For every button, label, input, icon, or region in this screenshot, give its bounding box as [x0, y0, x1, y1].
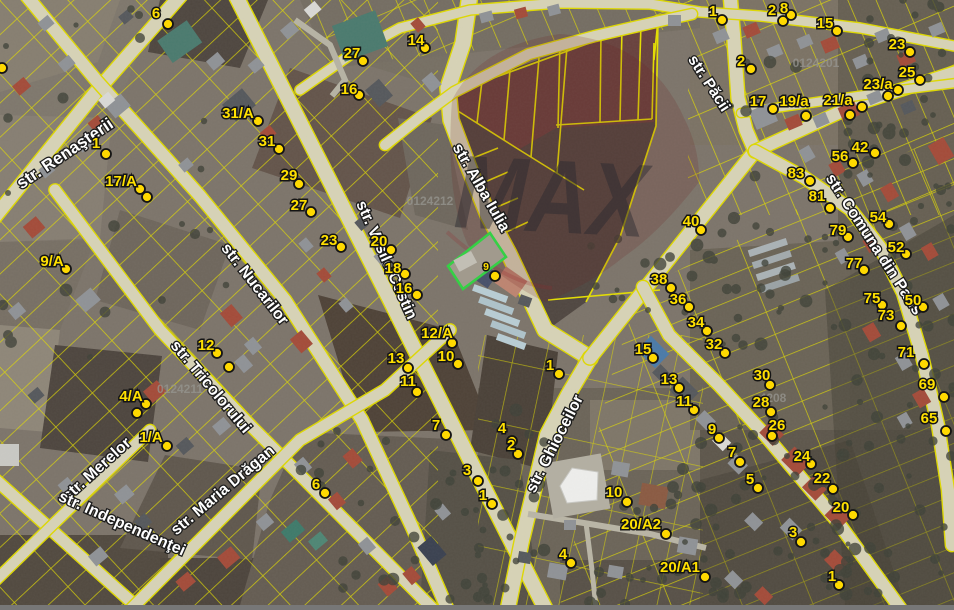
svg-text:27: 27	[291, 197, 308, 214]
svg-text:3: 3	[463, 462, 471, 479]
svg-text:4/A: 4/A	[119, 388, 143, 405]
svg-text:12: 12	[198, 337, 215, 354]
svg-text:32: 32	[706, 336, 723, 353]
svg-text:2: 2	[768, 2, 776, 19]
svg-text:26: 26	[769, 417, 786, 434]
svg-text:22: 22	[814, 470, 831, 487]
svg-text:0124201: 0124201	[793, 56, 840, 70]
svg-text:0124211: 0124211	[157, 382, 203, 396]
svg-text:31: 31	[259, 133, 276, 150]
svg-text:23: 23	[321, 232, 338, 249]
svg-text:13: 13	[388, 350, 405, 367]
svg-text:73: 73	[878, 307, 895, 324]
svg-text:1: 1	[92, 135, 100, 152]
svg-text:14: 14	[408, 32, 425, 49]
svg-text:12/A: 12/A	[421, 325, 453, 342]
svg-text:16: 16	[341, 81, 358, 98]
svg-text:17: 17	[750, 93, 767, 110]
svg-text:6: 6	[312, 476, 320, 493]
svg-text:20: 20	[371, 233, 388, 250]
svg-text:69: 69	[919, 376, 936, 393]
svg-text:81: 81	[809, 188, 826, 205]
svg-text:15: 15	[817, 15, 834, 32]
svg-text:7: 7	[728, 444, 736, 461]
svg-text:9: 9	[708, 421, 716, 438]
svg-text:42: 42	[852, 139, 869, 156]
svg-text:1: 1	[828, 568, 836, 585]
svg-text:20/A2: 20/A2	[621, 516, 661, 533]
svg-text:50: 50	[905, 292, 922, 309]
svg-text:28: 28	[753, 394, 770, 411]
svg-text:36: 36	[670, 291, 687, 308]
svg-text:24: 24	[794, 448, 811, 465]
svg-text:83: 83	[788, 165, 805, 182]
svg-text:10: 10	[438, 348, 455, 365]
svg-text:10: 10	[606, 484, 623, 501]
svg-text:3: 3	[789, 524, 797, 541]
svg-text:65: 65	[921, 410, 938, 427]
svg-text:2: 2	[737, 53, 745, 70]
svg-text:15: 15	[635, 341, 652, 358]
svg-text:5: 5	[746, 471, 754, 488]
svg-text:23/a: 23/a	[863, 76, 893, 93]
svg-text:2: 2	[507, 437, 515, 454]
svg-text:11: 11	[676, 393, 692, 410]
svg-text:40: 40	[683, 213, 700, 230]
svg-text:29: 29	[281, 167, 298, 184]
svg-text:9: 9	[483, 261, 489, 273]
svg-text:34: 34	[688, 314, 705, 331]
svg-text:1/A: 1/A	[139, 429, 163, 446]
svg-text:38: 38	[651, 271, 668, 288]
svg-text:16: 16	[396, 280, 413, 297]
svg-text:54: 54	[870, 209, 887, 226]
svg-text:52: 52	[888, 239, 905, 256]
svg-text:7: 7	[432, 417, 440, 434]
svg-text:75: 75	[864, 290, 881, 307]
svg-text:17/A: 17/A	[105, 173, 137, 190]
svg-text:11: 11	[400, 373, 416, 390]
svg-text:4: 4	[498, 420, 507, 437]
svg-text:77: 77	[846, 255, 863, 272]
svg-text:6: 6	[152, 5, 160, 22]
svg-text:56: 56	[832, 148, 849, 165]
svg-text:1: 1	[546, 357, 554, 374]
svg-text:19/a: 19/a	[779, 93, 809, 110]
svg-text:9/A: 9/A	[40, 253, 64, 270]
svg-text:1: 1	[709, 3, 717, 20]
svg-text:31/A: 31/A	[222, 105, 254, 122]
svg-text:8: 8	[780, 0, 788, 17]
svg-text:23: 23	[889, 36, 906, 53]
svg-text:13: 13	[661, 371, 678, 388]
svg-text:20: 20	[833, 499, 850, 516]
svg-text:79: 79	[830, 222, 847, 239]
svg-text:0124212: 0124212	[407, 194, 454, 208]
svg-text:1: 1	[479, 487, 487, 504]
svg-text:25: 25	[899, 64, 916, 81]
svg-text:27: 27	[344, 45, 361, 62]
svg-text:18: 18	[385, 260, 402, 277]
svg-text:71: 71	[898, 344, 915, 361]
svg-text:30: 30	[754, 367, 771, 384]
svg-text:4: 4	[559, 546, 568, 563]
svg-text:20/A1: 20/A1	[660, 559, 700, 576]
svg-text:21/a: 21/a	[823, 92, 853, 109]
